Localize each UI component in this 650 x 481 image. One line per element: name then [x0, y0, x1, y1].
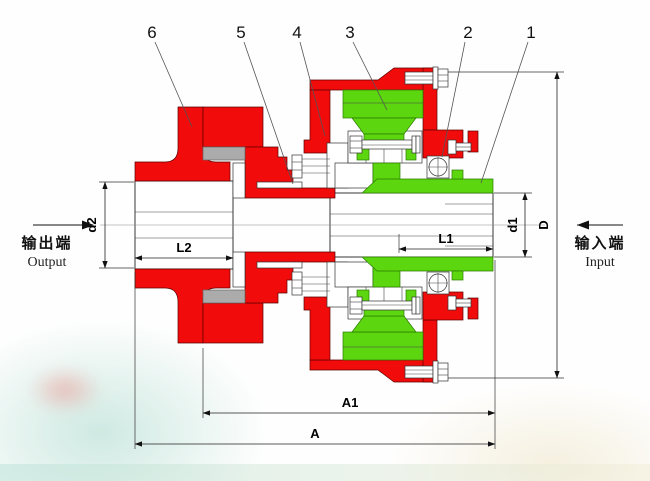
- input-arrow-icon: [577, 221, 589, 230]
- callout-2: 2: [463, 23, 472, 42]
- output-label-en: Output: [28, 255, 67, 270]
- coupling-upper-half: [135, 67, 493, 198]
- input-side-annotation: 输入端 Input: [574, 221, 625, 271]
- flange-bolt: [292, 155, 330, 178]
- dim-label-A1: A1: [342, 395, 359, 410]
- output-flange-ring: [203, 107, 263, 147]
- dim-label-d1: d1: [505, 217, 520, 232]
- dim-label-L2: L2: [176, 240, 191, 255]
- interior-block-lower: [335, 163, 373, 188]
- green-cap-block: [452, 170, 463, 179]
- output-side-annotation: 输出端 Output: [21, 221, 94, 271]
- detent-element: [427, 156, 449, 178]
- dim-label-A: A: [310, 426, 320, 441]
- input-label-cn: 输入端: [574, 234, 625, 252]
- coupling-lower-half: [135, 252, 493, 383]
- callout-5: 5: [236, 23, 245, 42]
- callout-3: 3: [345, 23, 354, 42]
- output-label-cn: 输出端: [21, 234, 72, 252]
- leader-line-1: [481, 42, 528, 183]
- leader-line-6: [155, 42, 192, 127]
- dim-label-L1: L1: [438, 231, 453, 246]
- middle-adapter: [245, 147, 335, 198]
- coupling-drawing-svg: d2 L2 L1 d1 D A1 A: [0, 0, 650, 481]
- green-sleeve-part1: [362, 179, 493, 193]
- callout-6: 6: [147, 23, 156, 42]
- key-gray: [203, 147, 245, 160]
- input-label-en: Input: [585, 255, 615, 270]
- callout-1: 1: [526, 23, 535, 42]
- drawing-canvas: d2 L2 L1 d1 D A1 A: [0, 0, 650, 481]
- callout-4: 4: [292, 23, 301, 42]
- spacer-ring: [233, 163, 245, 198]
- dim-label-D: D: [536, 220, 551, 229]
- shim-plate-part5: [257, 182, 302, 188]
- housing-left-wall: [304, 90, 330, 153]
